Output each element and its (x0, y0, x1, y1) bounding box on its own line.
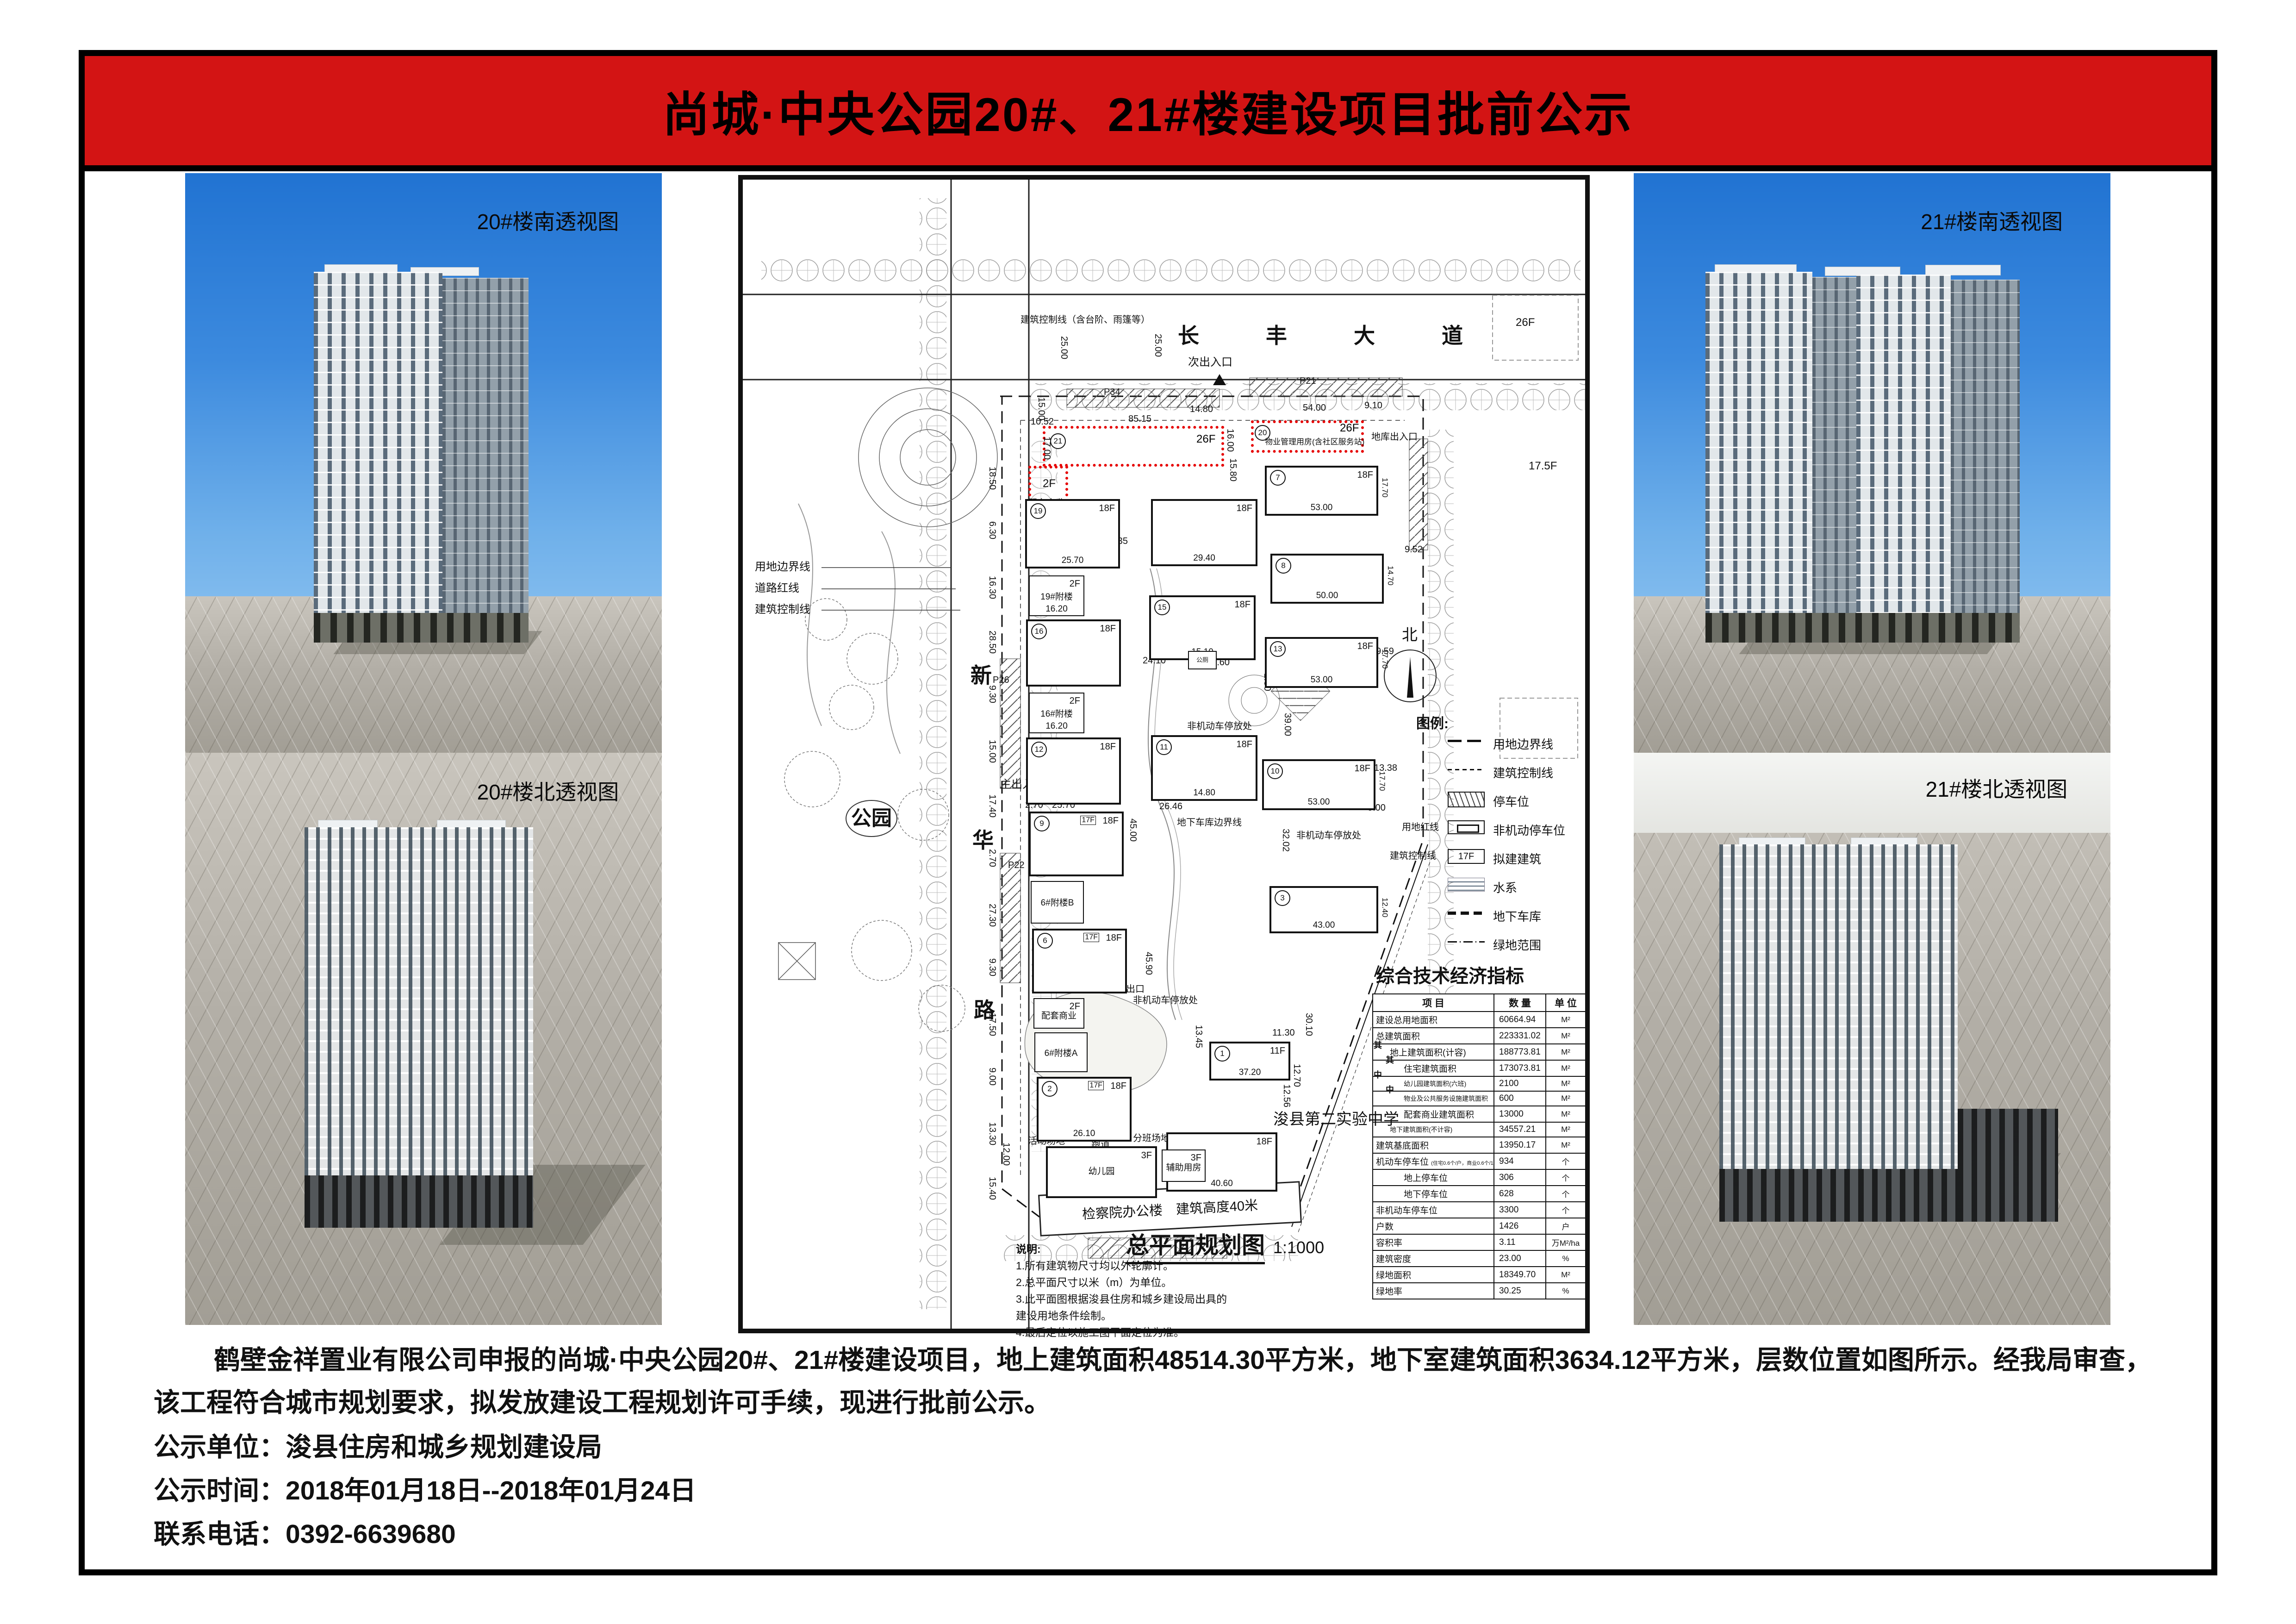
legend-sample-2 (1448, 792, 1485, 807)
plan-label-dims_top-3: 54.00 (1303, 403, 1326, 413)
plan-building-16#附楼: 2F16#附楼16.20 (1029, 693, 1084, 733)
site-plan: 21 26F 20 26F 物业管理用房(含社区服务站) 2F 配套商业 消防通… (738, 175, 1590, 1333)
building-21-north (1719, 844, 1958, 1222)
plan-label-labels-entr_secondary: 次出入口 (1188, 356, 1232, 369)
plan-label-labels-garage_boundary: 地下车库边界线 (1177, 818, 1242, 828)
notice-page: 尚城·中央公园20#、21#楼建设项目批前公示 20#楼南透视图 20#楼北透视… (0, 0, 2296, 1624)
legend-label-5: 水系 (1493, 879, 1517, 896)
plan-building-6#附楼A: 6#附楼A (1034, 1032, 1088, 1072)
plan-label-labels-school: 浚县第二实验中学 (1273, 1111, 1399, 1128)
econ-header-0: 项 目 (1373, 994, 1494, 1012)
legend-sample-5 (1448, 878, 1485, 892)
plan-building-16: 1618F (1026, 619, 1121, 687)
plan-label-dims_misc-6: 32.02 (1281, 829, 1291, 852)
plan-label-dims_left-1: 6.30 (987, 521, 997, 539)
plan-building-13: 1318F53.0017.70 (1265, 637, 1378, 688)
legend-item-5: 水系 (1448, 877, 1587, 897)
legend-label-2: 停车位 (1493, 793, 1529, 810)
econ-row-10: 地上停车位306个 (1373, 1169, 1586, 1186)
econ-row-13: 户数1426户 (1373, 1218, 1586, 1234)
legend-item-6: 地下车库 (1448, 906, 1587, 926)
plan-label-dims_left-5: 15.00 (987, 740, 997, 763)
plan-label-parkings-3: P22 (1008, 860, 1025, 870)
econ-row-5: 物业及公共服务设施建筑面积600M² (1373, 1091, 1586, 1106)
econ-row-4: 幼儿园建筑面积(六班)2100M² (1373, 1076, 1586, 1091)
plan-label-labels-boundary-1: 道路红线 (755, 582, 799, 594)
plan-label-dims_misc-16: 12.70 (1292, 1064, 1302, 1087)
econ-table-title: 综合技术经济指标 (1376, 961, 1591, 988)
legend-item-2: 停车位 (1448, 791, 1587, 811)
footer-line-5: 联系电话：0392-6639680 (154, 1513, 456, 1551)
plan-label-dims_misc-23: 26.46 (1159, 801, 1182, 812)
plan-building-3: 343.0012.40 (1269, 886, 1378, 933)
plan-building-12: 1218F (1026, 737, 1121, 805)
econ-side-group-0: 其中 (1371, 1041, 1383, 1100)
panel-label-21-north: 21#楼北透视图 (1926, 773, 2068, 803)
building-20-south (314, 272, 529, 643)
plan-label-dims_left-12: 13.30 (987, 1122, 997, 1145)
plan-building-11: 1118F14.80 (1151, 735, 1257, 801)
red-outline-building-21 (1043, 426, 1224, 467)
plan-label-dims_misc-2: 45.00 (1128, 818, 1138, 842)
plan-label-dims_misc-15: 12.56 (1282, 1084, 1292, 1107)
title-banner: 尚城·中央公园20#、21#楼建设项目批前公示 (79, 50, 2217, 171)
plan-label-labels-boundary-2: 建筑控制线 (755, 604, 810, 616)
plan-building-幼儿园: 3F幼儿园 (1046, 1146, 1157, 1198)
plan-label-dims_vert-5: 15.80 (1228, 458, 1238, 481)
plan-label-dims_vert-3: 17.00 (1042, 437, 1052, 460)
plan-building-1: 111F37.20 (1209, 1042, 1290, 1081)
legend-sample-0 (1448, 740, 1485, 742)
panel-label-20-north: 20#楼北透视图 (477, 775, 619, 806)
plan-label-non-motor-2: 非机动车停放处 (1187, 721, 1252, 731)
legend-sample-4: 17F (1448, 849, 1485, 864)
legend-label-4: 拟建建筑 (1493, 850, 1541, 867)
plan-label-dims_left-2: 16.30 (987, 576, 997, 599)
legend-label-0: 用地边界线 (1493, 735, 1553, 752)
plan-building-公厕: 公厕 (1188, 651, 1217, 669)
footer-line-3: 公示单位：浚县住房和城乡规划建设局 (154, 1426, 602, 1464)
plan-building-12: 18F29.40 (1151, 499, 1257, 566)
plan-label-parkings-1: P21 (1300, 376, 1316, 386)
econ-row-6: 配套商业建筑面积13000M² (1373, 1106, 1586, 1122)
plan-label-parkings-2: P26 (993, 675, 1009, 685)
rendering-21-north: 21#楼北透视图 (1634, 753, 2110, 1325)
legend-sample-1 (1448, 769, 1485, 770)
road-name-changfeng-2: 大 (1354, 324, 1375, 348)
plan-label-labels-boundary-0: 用地边界线 (755, 561, 810, 573)
note-line-2: 3.此平面图根据浚县住房和城乡建设局出具的 (1016, 1291, 1227, 1307)
plan-label-dims_misc-20: 12.00 (1001, 1143, 1011, 1166)
rendering-21-south: 21#楼南透视图 (1634, 173, 2110, 753)
legend-label-7: 绿地范围 (1493, 936, 1541, 953)
econ-row-12: 非机动车停车位3300个 (1373, 1202, 1586, 1218)
plan-label-labels-ctrl_top: 建筑控制线（含台阶、雨篷等） (1020, 315, 1150, 325)
plan-label-dims_left-9: 9.30 (987, 958, 997, 976)
plan-building-19#附楼: 2F19#附楼16.20 (1029, 575, 1084, 616)
plan-label-dims_misc-5: 39.00 (1282, 713, 1293, 736)
plan-label-non-motor-3: 非机动车停放处 (1296, 831, 1361, 841)
panel-label-20-south: 20#楼南透视图 (477, 205, 619, 236)
plan-label-dims_vert-2: 15.00 (1036, 397, 1046, 420)
map-scale: 1:1000 (1273, 1238, 1324, 1257)
econ-row-3: 住宅建筑面积173073.81M² (1373, 1060, 1586, 1076)
econ-row-8: 建筑基底面积13950.17M² (1373, 1137, 1586, 1153)
road-name-xinhua-1: 华 (972, 829, 994, 852)
plan-label-dims_vert-4: 16.00 (1225, 429, 1235, 452)
plan-label-labels-non_motor: 非机动车停放处 (1133, 995, 1198, 1006)
legend-sample-7 (1448, 941, 1485, 943)
plan-building-8: 850.0014.70 (1270, 554, 1384, 604)
plan-label-labels-neighbor_26f: 26F (1516, 317, 1535, 329)
building-21-number: 21 (1050, 433, 1066, 449)
plan-label-labels-neighbor_175f: 17.5F (1529, 460, 1557, 472)
plan-label-dims_top-2: 14.80 (1190, 404, 1213, 414)
legend-item-4: 17F拟建建筑 (1448, 848, 1587, 868)
economic-indicators: 综合技术经济指标 项 目数 量单 位建设总用地面积60664.94M²总建筑面积… (1372, 961, 1591, 1299)
econ-header-2: 单 位 (1546, 994, 1586, 1012)
plan-building-10: 1018F53.0017.70 (1262, 759, 1375, 810)
plan-building-辅助用房: 3F辅助用房 (1162, 1149, 1206, 1182)
map-title-block: 总平面规划图1:1000 (1126, 1227, 1324, 1264)
econ-row-9: 机动车停车位 (住宅0.6个/户，商业0.6个/100m²)934个 (1373, 1153, 1586, 1169)
econ-row-11: 地下停车位628个 (1373, 1186, 1586, 1202)
north-label: 北 (1402, 627, 1418, 644)
legend-label-6: 地下车库 (1493, 907, 1541, 924)
map-title: 总平面规划图 (1126, 1227, 1265, 1264)
footer-line-1: 鹤壁金祥置业有限公司申报的尚城·中央公园20#、21#楼建设项目，地上建筑面积4… (214, 1339, 2152, 1377)
plan-building-2: 217F18F26.10 (1037, 1077, 1132, 1142)
road-name-changfeng-0: 长 (1178, 324, 1199, 348)
building-21-south (1705, 272, 2020, 643)
footer-line-2: 该工程符合城市规划要求，拟发放建设工程规划许可手续，现进行批前公示。 (154, 1381, 1051, 1419)
plan-label-dims_left-0: 18.50 (987, 467, 997, 490)
legend-sample-3 (1448, 820, 1485, 834)
rendering-20-north: 20#楼北透视图 (185, 753, 662, 1325)
legend-label-1: 建筑控制线 (1493, 764, 1553, 781)
plan-label-dims_left-13: 15.40 (987, 1177, 997, 1200)
econ-header-1: 数 量 (1494, 994, 1546, 1012)
econ-row-2: 地上建筑面积(计容)188773.81M² (1373, 1044, 1586, 1060)
legend-item-0: 用地边界线 (1448, 733, 1587, 754)
econ-row-14: 容积率3.11万M²/ha (1373, 1234, 1586, 1250)
plan-label-dims_vert-1: 25.00 (1153, 334, 1163, 357)
note-line-4: 4.最后定位以施工图平面定位为准。 (1016, 1324, 1227, 1341)
legend-item-3: 非机动停车位 (1448, 819, 1587, 840)
econ-row-16: 绿地面积18349.70M² (1373, 1267, 1586, 1283)
legend-sample-6 (1448, 912, 1485, 915)
plan-building-9: 917F18F (1029, 812, 1124, 876)
note-line-3: 建设用地条件绘制。 (1016, 1307, 1227, 1324)
plan-label-dims_left-6: 17.40 (987, 794, 997, 818)
plan-building-配套商业: 2F配套商业 (1033, 998, 1084, 1029)
building-20-north (305, 827, 533, 1228)
building-21-floors: 26F (1196, 433, 1215, 445)
panel-label-21-south: 21#楼南透视图 (1921, 205, 2063, 236)
plan-label-dims_left-8: 27.30 (987, 904, 997, 927)
note-line-1: 2.总平面尺寸以米（m）为单位。 (1016, 1274, 1227, 1291)
plan-label-dims_left-7: 2.70 (987, 849, 997, 867)
econ-row-7: 地下建筑面积(不计容)34557.21M² (1373, 1122, 1586, 1137)
plan-label-dims_misc-17: 13.45 (1194, 1025, 1204, 1048)
plan-label-labels-activity-2: 分班场地 (1133, 1133, 1170, 1143)
building-20-use-label: 物业管理用房(含社区服务站) (1265, 438, 1364, 447)
plan-label-dims_vert-0: 25.00 (1059, 336, 1069, 359)
econ-row-15: 建筑密度23.00% (1373, 1250, 1586, 1267)
plan-label-dims_top-4: 9.10 (1364, 400, 1382, 411)
econ-row-17: 绿地率30.25% (1373, 1283, 1586, 1299)
plan-label-dims_left-10: 17.50 (987, 1013, 997, 1036)
econ-row-1: 总建筑面积223331.02M² (1373, 1028, 1586, 1044)
page-title: 尚城·中央公园20#、21#楼建设项目批前公示 (662, 77, 1633, 145)
plan-label-labels-red_line: 用地红线 (1402, 822, 1439, 832)
legend-title: 图例: (1416, 712, 1449, 732)
plan-label-dims_top-1: 85.15 (1128, 414, 1151, 424)
footer-line-4: 公示时间：2018年01月18日--2018年01月24日 (154, 1469, 696, 1507)
building-20-floors: 26F (1340, 422, 1359, 434)
econ-row-0: 建设总用地面积60664.94M² (1373, 1012, 1586, 1028)
plan-building-6: 617F18F (1032, 929, 1127, 993)
building-21-annex-floors: 2F (1043, 478, 1056, 490)
plan-building-6#附楼B: 6#附楼B (1031, 881, 1084, 924)
legend-label-3: 非机动停车位 (1493, 821, 1565, 838)
plan-building-19: 1918F25.70 (1025, 499, 1120, 568)
road-name-changfeng-3: 道 (1442, 324, 1463, 348)
north-arrow (1384, 650, 1437, 702)
park-label: 公园 (846, 800, 897, 837)
plan-label-dims_misc-18: 11.30 (1272, 1028, 1295, 1038)
road-name-changfeng-1: 丰 (1266, 324, 1287, 348)
plan-label-parkings-0: P34 (1104, 387, 1120, 397)
rendering-20-south: 20#楼南透视图 (185, 173, 662, 753)
plan-label-dims_left-3: 28.50 (987, 631, 997, 654)
econ-side-group-1: 其中 (1383, 1056, 1395, 1115)
plan-label-dims_misc-3: 45.90 (1144, 952, 1154, 975)
road-name-xinhua-0: 新 (971, 664, 992, 687)
plan-label-dims_misc-7: 9.52 (1405, 544, 1423, 555)
plan-label-labels-entr_garage: 地库出入口 (1371, 432, 1418, 442)
plan-building-15: 1518F15.10 (1149, 595, 1256, 660)
legend-item-1: 建筑控制线 (1448, 762, 1587, 782)
plan-label-labels-ctrl_line: 建筑控制线 (1390, 851, 1436, 861)
plan-label-dims_left-11: 9.00 (987, 1068, 997, 1086)
legend-item-7: 绿地范围 (1448, 934, 1587, 955)
plan-label-dims_left-4: 9.30 (987, 685, 997, 703)
econ-table: 项 目数 量单 位建设总用地面积60664.94M²总建筑面积223331.02… (1372, 993, 1586, 1299)
plan-building-7: 718F53.0017.70 (1265, 466, 1378, 516)
plan-label-dims_misc-14: 30.10 (1304, 1013, 1314, 1036)
